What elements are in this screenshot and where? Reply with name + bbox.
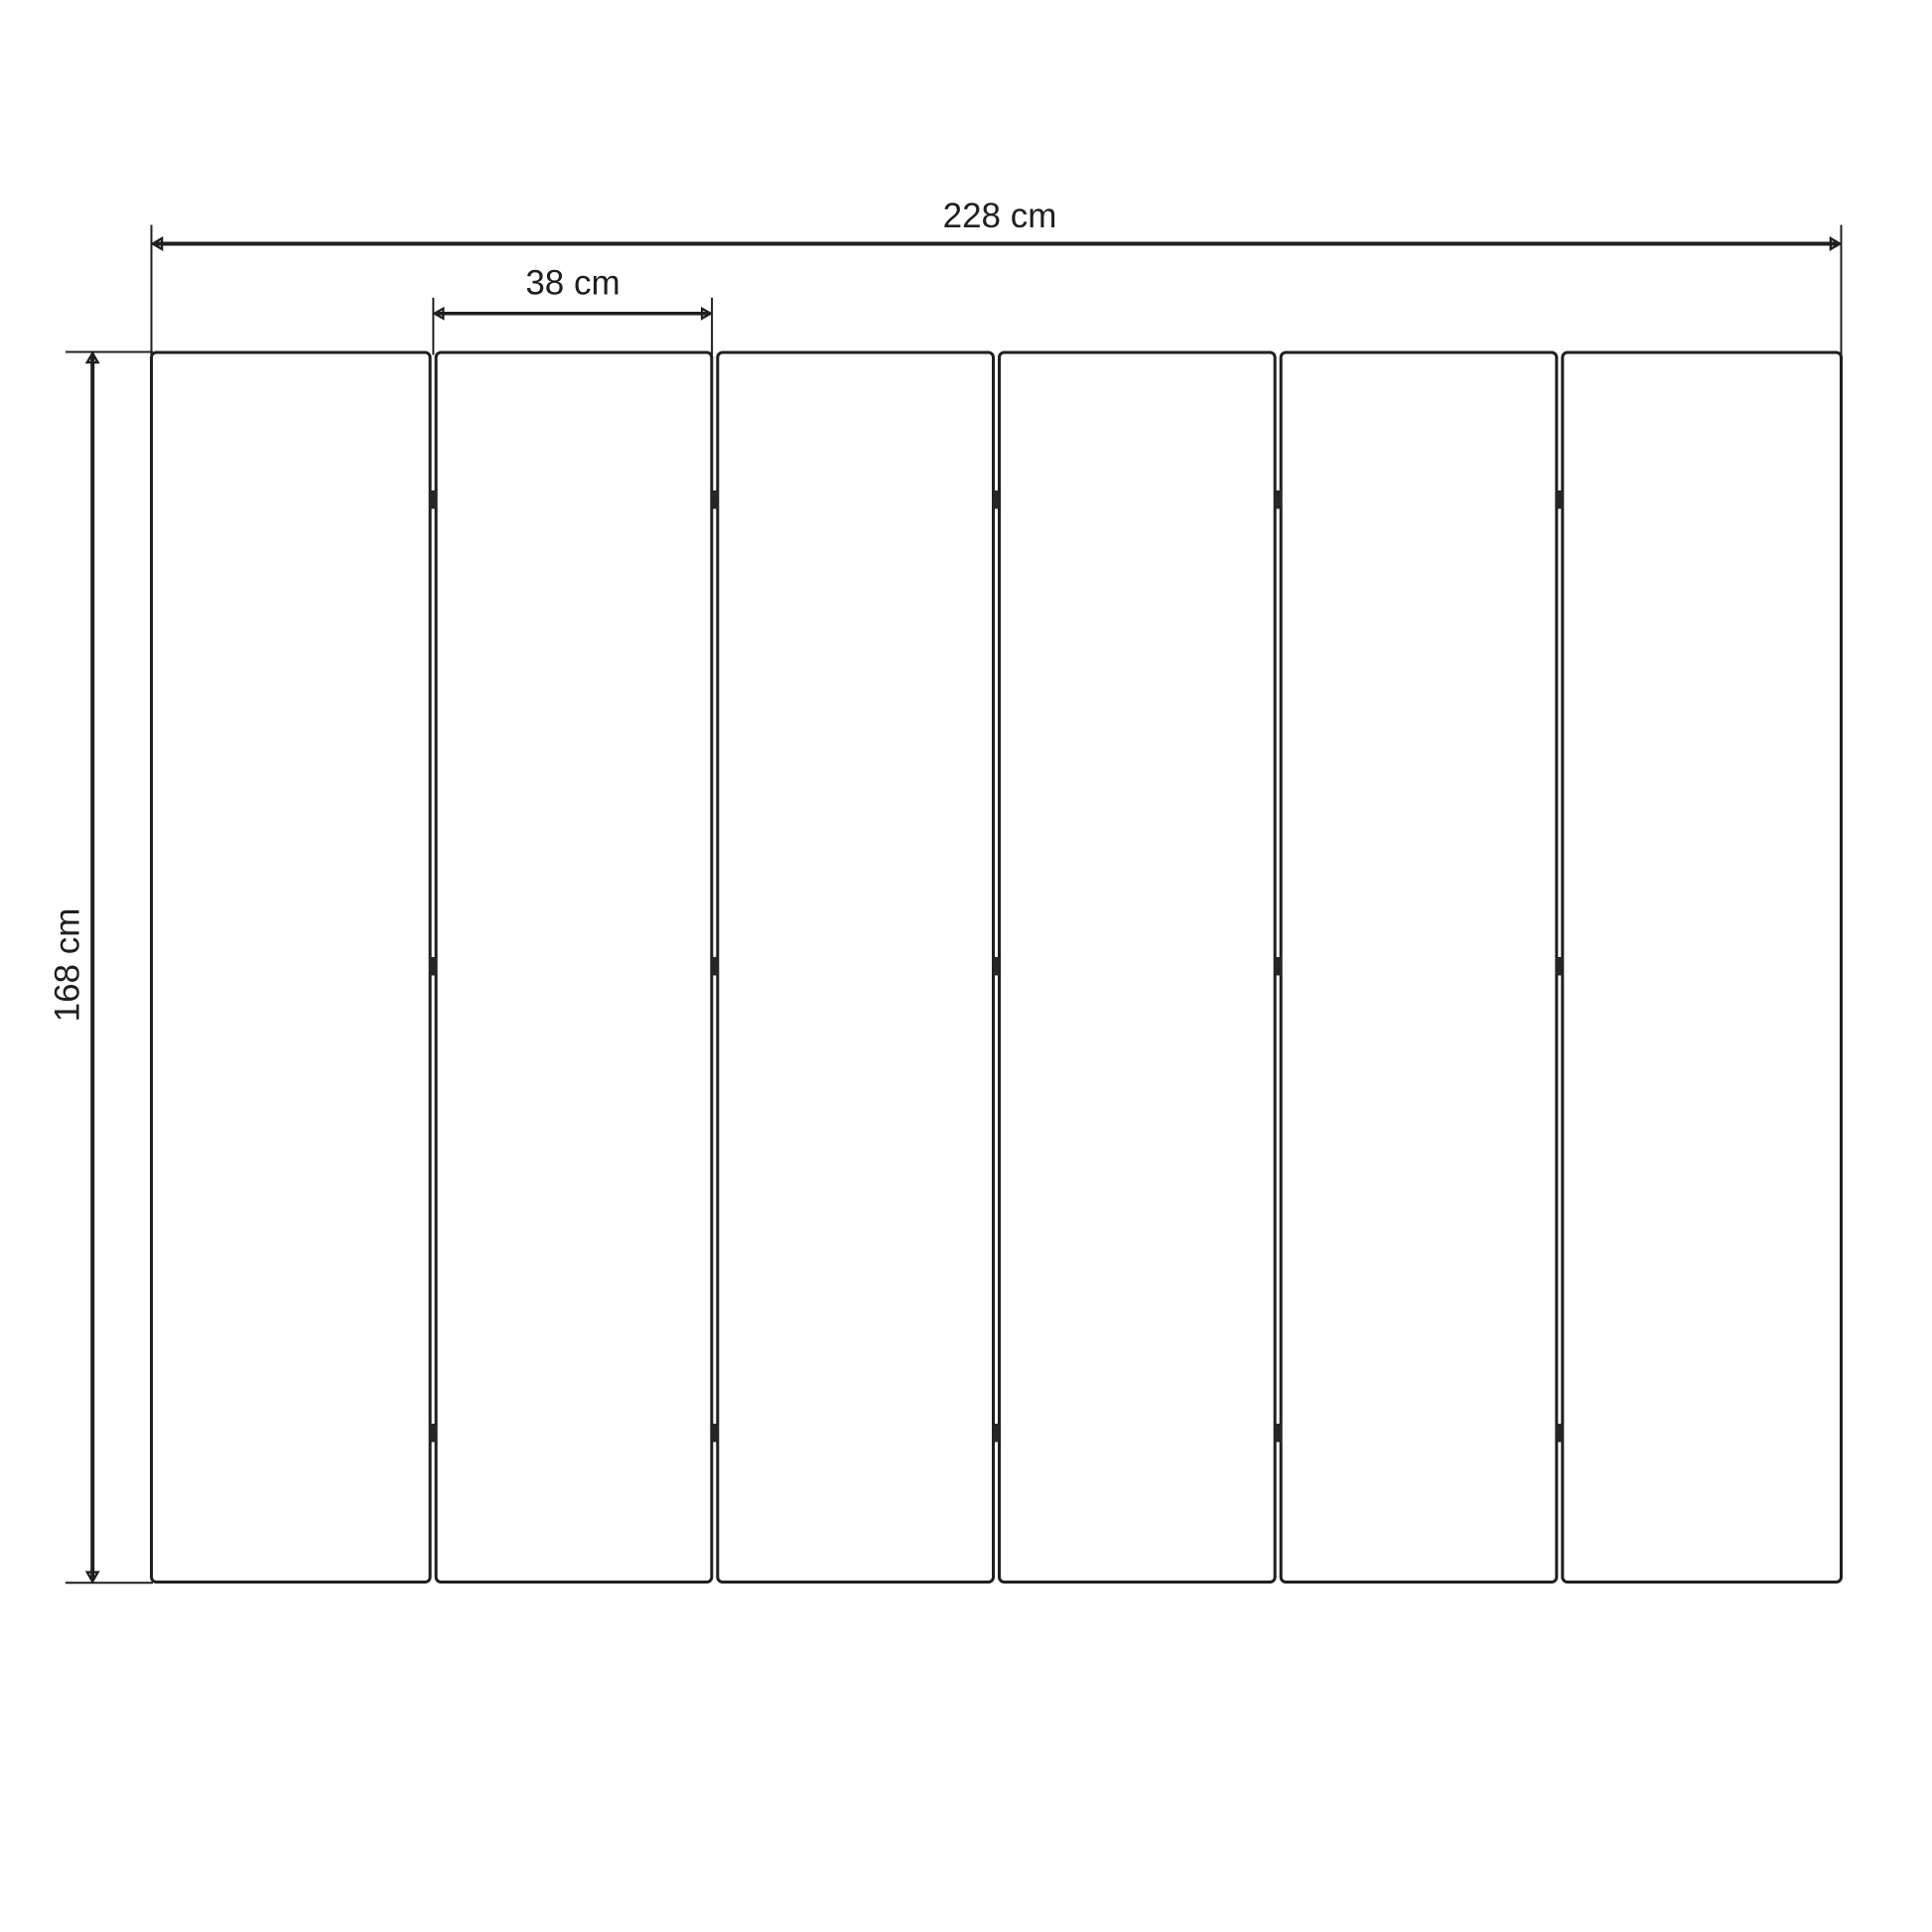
svg-text:168 cm: 168 cm (49, 908, 87, 1023)
svg-text:228 cm: 228 cm (943, 197, 1057, 235)
svg-text:38 cm: 38 cm (525, 264, 620, 303)
